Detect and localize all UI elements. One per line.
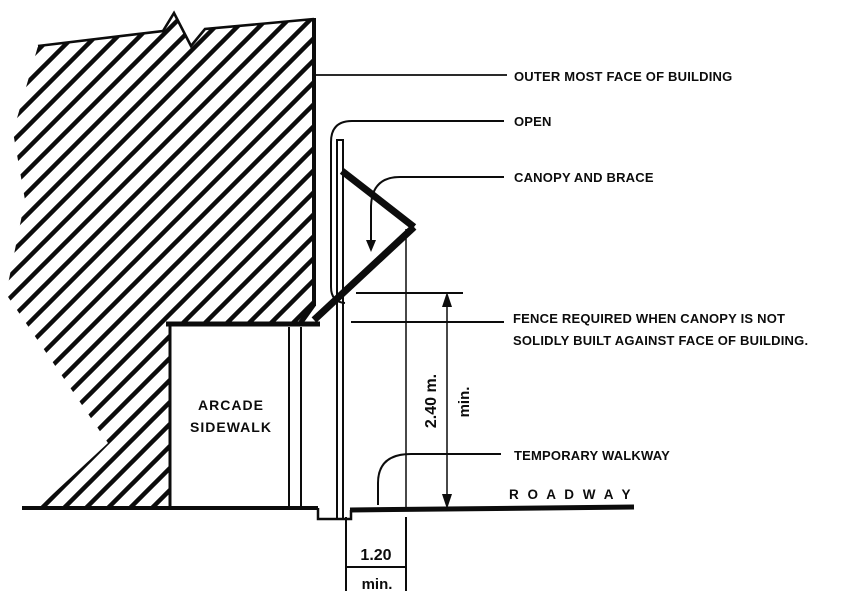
arcade-label-line1: ARCADE: [198, 397, 264, 413]
width-dim-qualifier: min.: [362, 576, 393, 593]
callout-labels: OUTER MOST FACE OF BUILDING OPEN CANOPY …: [509, 69, 808, 502]
arcade-label-line2: SIDEWALK: [190, 419, 272, 435]
drawing-sheet: ARCADE SIDEWALK 2.40 m. min.: [0, 0, 841, 606]
label-outer-most-face: OUTER MOST FACE OF BUILDING: [514, 69, 732, 84]
canopy-line: [342, 171, 414, 227]
height-dim-arrow-up: [442, 292, 452, 307]
label-fence-required-line1: FENCE REQUIRED WHEN CANOPY IS NOT: [513, 311, 785, 326]
width-dim-value: 1.20: [360, 547, 391, 564]
arcade-opening: ARCADE SIDEWALK: [166, 323, 320, 508]
canopy-leader-arrow: [366, 240, 376, 252]
height-dim-qualifier: min.: [456, 387, 473, 418]
height-dim-value: 2.40 m.: [423, 374, 440, 428]
label-roadway: R O A D W A Y: [509, 487, 633, 502]
ground: [22, 507, 634, 519]
fence-and-canopy: [314, 140, 414, 518]
label-temporary-walkway: TEMPORARY WALKWAY: [514, 448, 670, 463]
label-canopy-and-brace: CANOPY AND BRACE: [514, 170, 654, 185]
brace-line: [314, 227, 414, 320]
diagram-canvas: ARCADE SIDEWALK 2.40 m. min.: [0, 0, 841, 606]
height-dimension: 2.40 m. min.: [356, 292, 473, 509]
ground-line-right: [350, 507, 634, 510]
walkway-leader: [378, 454, 501, 505]
label-fence-required-line2: SOLIDLY BUILT AGAINST FACE OF BUILDING.: [513, 333, 808, 348]
width-dimension: 1.20 min.: [346, 517, 406, 593]
label-open: OPEN: [514, 114, 552, 129]
